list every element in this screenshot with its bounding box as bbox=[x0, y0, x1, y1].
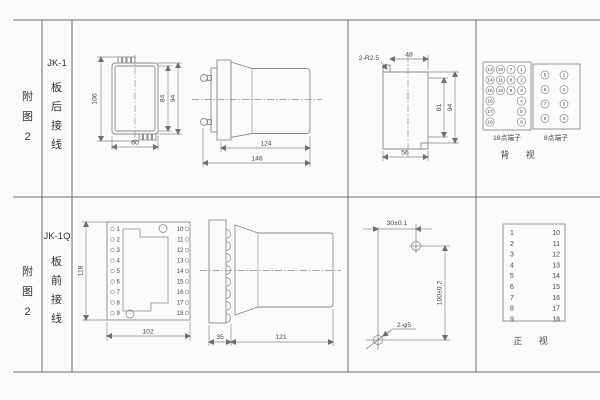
svg-text:7: 7 bbox=[510, 295, 514, 302]
svg-text:2: 2 bbox=[563, 87, 566, 93]
svg-text:5: 5 bbox=[510, 273, 514, 280]
svg-text:8: 8 bbox=[510, 78, 513, 84]
fig-label-row1: 附图2 bbox=[19, 87, 36, 147]
svg-text:1: 1 bbox=[510, 230, 514, 237]
terminal-block-8 bbox=[533, 64, 580, 129]
figure-table: 106 84 94 60 124 146 2-R2.5 48 81 94 56 … bbox=[0, 0, 600, 400]
svg-text:8: 8 bbox=[544, 116, 547, 122]
svg-text:12: 12 bbox=[177, 248, 184, 254]
svg-text:8: 8 bbox=[510, 306, 514, 313]
block18-label: 18点端子 bbox=[493, 133, 521, 142]
svg-text:12: 12 bbox=[498, 88, 504, 94]
svg-text:10: 10 bbox=[552, 230, 560, 237]
svg-text:7: 7 bbox=[117, 290, 121, 296]
dim-48: 48 bbox=[405, 52, 413, 59]
svg-text:15: 15 bbox=[177, 280, 184, 286]
svg-text:14: 14 bbox=[177, 269, 184, 275]
dim-124: 124 bbox=[260, 141, 272, 148]
block8-label: 8点端子 bbox=[544, 133, 568, 142]
svg-text:9: 9 bbox=[510, 88, 513, 94]
svg-text:9: 9 bbox=[510, 316, 514, 323]
dim-146: 146 bbox=[251, 156, 263, 163]
svg-text:14: 14 bbox=[552, 273, 560, 280]
dim-94-cutout: 94 bbox=[447, 104, 454, 112]
cutout-radius-note: 2-R2.5 bbox=[359, 55, 380, 62]
svg-text:1: 1 bbox=[520, 67, 523, 73]
hole-spec-label: 2-φ5 bbox=[397, 322, 411, 329]
svg-text:18: 18 bbox=[487, 120, 493, 126]
svg-text:9: 9 bbox=[117, 311, 121, 317]
front-view-label: 正 视 bbox=[513, 335, 555, 346]
svg-text:10: 10 bbox=[498, 67, 504, 73]
jk1-side-view bbox=[192, 60, 322, 167]
svg-text:2: 2 bbox=[510, 241, 514, 248]
svg-text:11: 11 bbox=[177, 238, 184, 244]
svg-text:2: 2 bbox=[520, 78, 523, 84]
terminal-number-list: 123456789 101112131415161718 bbox=[503, 224, 565, 323]
dim-106: 106 bbox=[92, 93, 99, 105]
svg-text:2: 2 bbox=[117, 238, 121, 244]
dim-56: 56 bbox=[401, 150, 409, 157]
dim-30: 30±0.1 bbox=[387, 220, 408, 227]
wiring-label-row1: 板后接线 bbox=[48, 79, 65, 155]
dim-102: 102 bbox=[142, 329, 154, 336]
svg-text:11: 11 bbox=[553, 241, 560, 248]
dim-60: 60 bbox=[131, 140, 139, 147]
svg-text:1: 1 bbox=[117, 227, 121, 233]
svg-text:3: 3 bbox=[117, 248, 121, 254]
svg-text:3: 3 bbox=[520, 88, 523, 94]
svg-text:4: 4 bbox=[510, 262, 514, 269]
technical-drawing: 106 84 94 60 124 146 2-R2.5 48 81 94 56 … bbox=[0, 0, 600, 400]
svg-text:1: 1 bbox=[563, 73, 566, 79]
fig-label-row2: 附图2 bbox=[19, 262, 36, 322]
svg-text:15: 15 bbox=[487, 88, 493, 94]
terminal-block-18-numbers: 131071 141182 151293 164 175 186 bbox=[487, 67, 523, 126]
dim-84: 84 bbox=[160, 95, 167, 103]
dim-35: 35 bbox=[216, 334, 224, 341]
svg-text:13: 13 bbox=[177, 259, 184, 265]
svg-text:13: 13 bbox=[487, 67, 493, 73]
svg-text:6: 6 bbox=[544, 87, 547, 93]
svg-text:6: 6 bbox=[520, 120, 523, 126]
svg-text:7: 7 bbox=[510, 67, 513, 73]
svg-text:11: 11 bbox=[498, 78, 503, 84]
svg-text:15: 15 bbox=[552, 284, 560, 291]
svg-text:16: 16 bbox=[487, 99, 493, 105]
svg-text:16: 16 bbox=[177, 290, 184, 296]
svg-text:8: 8 bbox=[117, 301, 121, 307]
dim-121: 121 bbox=[275, 334, 287, 341]
dim-118: 118 bbox=[78, 265, 85, 276]
wiring-label-row2: 板前接线 bbox=[48, 253, 65, 329]
dim-94: 94 bbox=[170, 95, 177, 103]
svg-text:3: 3 bbox=[563, 102, 566, 108]
svg-text:17: 17 bbox=[487, 109, 493, 115]
svg-text:4: 4 bbox=[563, 116, 566, 122]
dim-100: 100±0.2 bbox=[437, 281, 444, 306]
front-panel-terminal-numbers: 123456789 101112131415161718 bbox=[117, 227, 185, 317]
svg-text:18: 18 bbox=[177, 311, 184, 317]
svg-text:5: 5 bbox=[117, 269, 121, 275]
svg-text:5: 5 bbox=[544, 73, 547, 79]
svg-text:10: 10 bbox=[177, 227, 184, 233]
jk1q-side-view bbox=[200, 220, 341, 346]
svg-text:4: 4 bbox=[520, 99, 523, 105]
svg-text:17: 17 bbox=[177, 301, 184, 307]
svg-text:18: 18 bbox=[552, 316, 560, 323]
jk1q-front-panel-view bbox=[82, 222, 190, 341]
dim-81: 81 bbox=[436, 104, 443, 112]
rear-view-label: 背 视 bbox=[500, 149, 542, 160]
svg-text:6: 6 bbox=[510, 284, 514, 291]
svg-text:7: 7 bbox=[544, 102, 547, 108]
svg-text:6: 6 bbox=[117, 280, 121, 286]
model-label-jk1q: JK-1Q bbox=[41, 231, 73, 242]
svg-text:4: 4 bbox=[117, 259, 121, 265]
svg-text:16: 16 bbox=[552, 295, 560, 302]
svg-text:5: 5 bbox=[520, 109, 523, 115]
svg-text:3: 3 bbox=[510, 252, 514, 259]
svg-text:13: 13 bbox=[552, 262, 560, 269]
svg-text:17: 17 bbox=[552, 306, 560, 313]
svg-text:12: 12 bbox=[552, 252, 560, 259]
svg-text:14: 14 bbox=[487, 78, 493, 84]
model-label-jk1: JK-1 bbox=[41, 58, 73, 69]
